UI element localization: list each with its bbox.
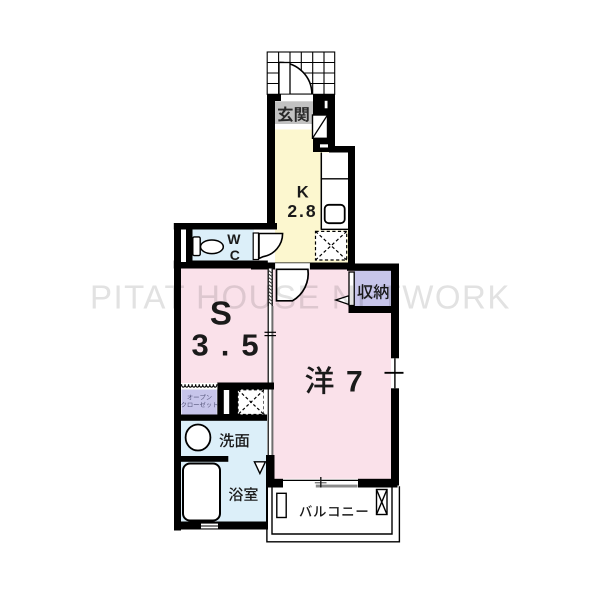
svg-text:7: 7 <box>346 366 363 399</box>
svg-text:W: W <box>227 231 241 247</box>
svg-text:3.5: 3.5 <box>192 328 271 363</box>
svg-text:C: C <box>230 247 240 263</box>
svg-text:K: K <box>297 184 309 202</box>
svg-text:2.8: 2.8 <box>287 201 317 221</box>
svg-text:PITAT HOUSE NETWORK: PITAT HOUSE NETWORK <box>90 279 511 316</box>
